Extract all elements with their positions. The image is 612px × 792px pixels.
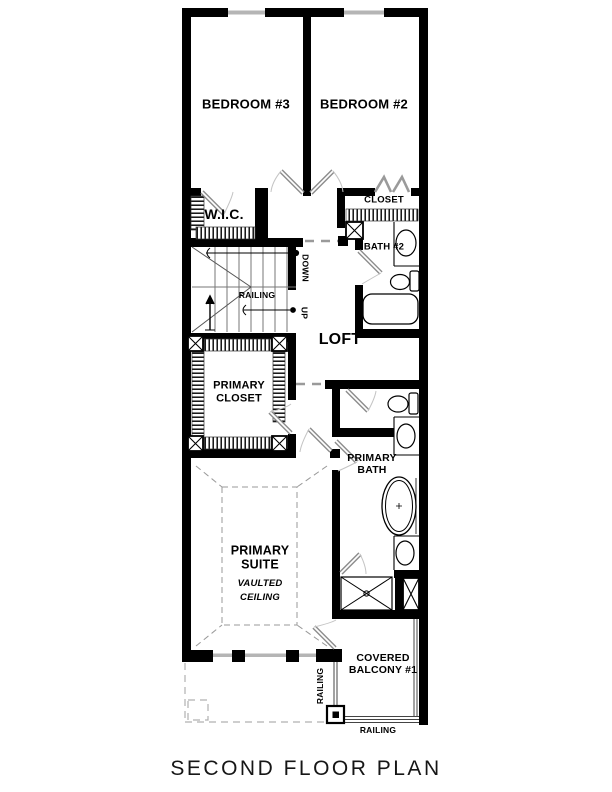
page-title: SECOND FLOOR PLAN: [170, 757, 441, 781]
label-loft: LOFT: [319, 332, 362, 348]
wc-toilet-bowl: [388, 396, 408, 412]
label-railing-balcony-bottom: RAILING: [360, 726, 396, 735]
label-primary-bath: PRIMARY BATH: [347, 452, 396, 476]
floor-plan-drawing: [0, 0, 612, 745]
label-railing-stairs: RAILING: [239, 291, 275, 300]
closet-rod-hatches: [191, 196, 418, 449]
vanity-sink-2: [396, 541, 414, 565]
primary-bath-fixtures: [382, 393, 419, 570]
bifold-doors: [375, 177, 409, 192]
label-covered-balcony: COVERED BALCONY #1: [349, 652, 417, 676]
label-vaulted-ceiling: VAULTED CEILING: [238, 577, 283, 606]
stair-up-arrow: [205, 296, 215, 330]
label-wic: W.I.C.: [204, 207, 243, 221]
label-railing-balcony-side: RAILING: [316, 668, 325, 704]
floor-plan-sheet: BEDROOM #3 BEDROOM #2 W.I.C. CLOSET BATH…: [0, 0, 612, 792]
vanity-sink-1: [397, 424, 415, 448]
label-bedroom-3: BEDROOM #3: [202, 98, 290, 111]
label-down: DOWN: [301, 254, 310, 282]
bath2-toilet-bowl: [391, 275, 410, 290]
label-primary-closet: PRIMARY CLOSET: [213, 379, 265, 404]
bath2-fixtures: [363, 222, 419, 324]
stair-down-arrow: [206, 248, 299, 258]
label-bath-2: BATH #2: [364, 242, 404, 252]
label-up: UP: [300, 307, 309, 319]
label-closet: CLOSET: [364, 195, 404, 205]
label-bedroom-2: BEDROOM #2: [320, 98, 408, 111]
wc-toilet-tank: [409, 393, 418, 414]
roof-outline: [185, 663, 326, 722]
label-primary-suite: PRIMARY SUITE: [231, 544, 290, 573]
bath2-toilet-tank: [410, 271, 419, 291]
bath2-tub: [363, 294, 418, 324]
shower: [341, 577, 392, 610]
